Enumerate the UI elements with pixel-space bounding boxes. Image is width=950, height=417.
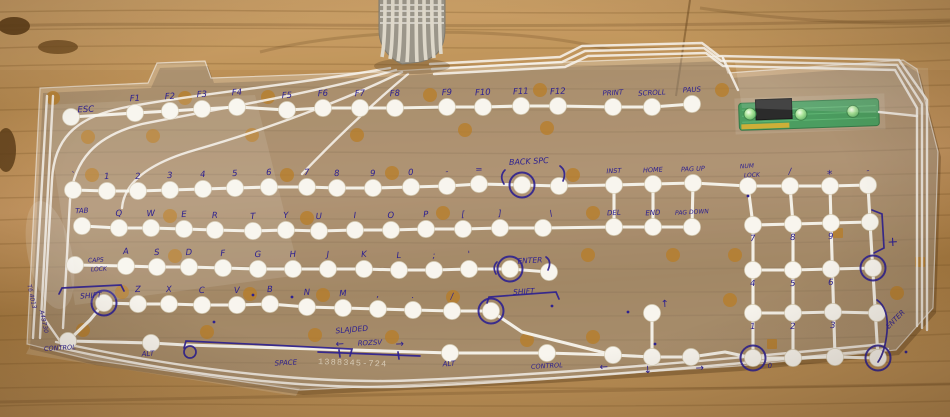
photo-keyboard-membrane: ESCF1F2F3F4F5F6F7F8F9F10F11F12PRINTSCROL… xyxy=(0,0,950,417)
photo: ESCF1F2F3F4F5F6F7F8F9F10F11F12PRINTSCROL… xyxy=(0,0,950,417)
vignette xyxy=(0,0,950,417)
